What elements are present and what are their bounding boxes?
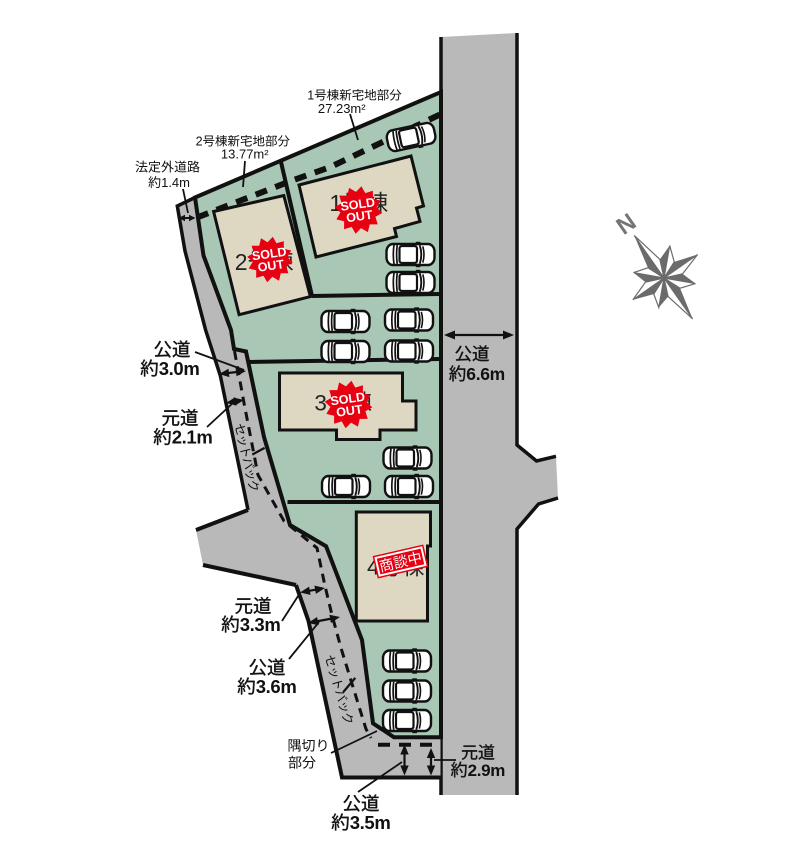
svg-text:2.9m: 2.9m [468, 761, 506, 780]
svg-text:13.77m²: 13.77m² [221, 147, 269, 162]
svg-text:3.3m: 3.3m [240, 614, 281, 635]
svg-text:2.1m: 2.1m [172, 427, 213, 448]
svg-text:1.4m: 1.4m [161, 175, 190, 190]
svg-text:6.6m: 6.6m [466, 364, 505, 384]
svg-text:2: 2 [235, 249, 248, 275]
svg-text:27.23m²: 27.23m² [318, 101, 366, 116]
svg-text:3.0m: 3.0m [159, 358, 200, 379]
svg-text:3: 3 [314, 390, 327, 415]
svg-text:2: 2 [196, 135, 203, 149]
svg-text:3.5m: 3.5m [350, 812, 391, 833]
svg-text:1: 1 [307, 89, 314, 103]
svg-text:3.6m: 3.6m [256, 676, 297, 697]
